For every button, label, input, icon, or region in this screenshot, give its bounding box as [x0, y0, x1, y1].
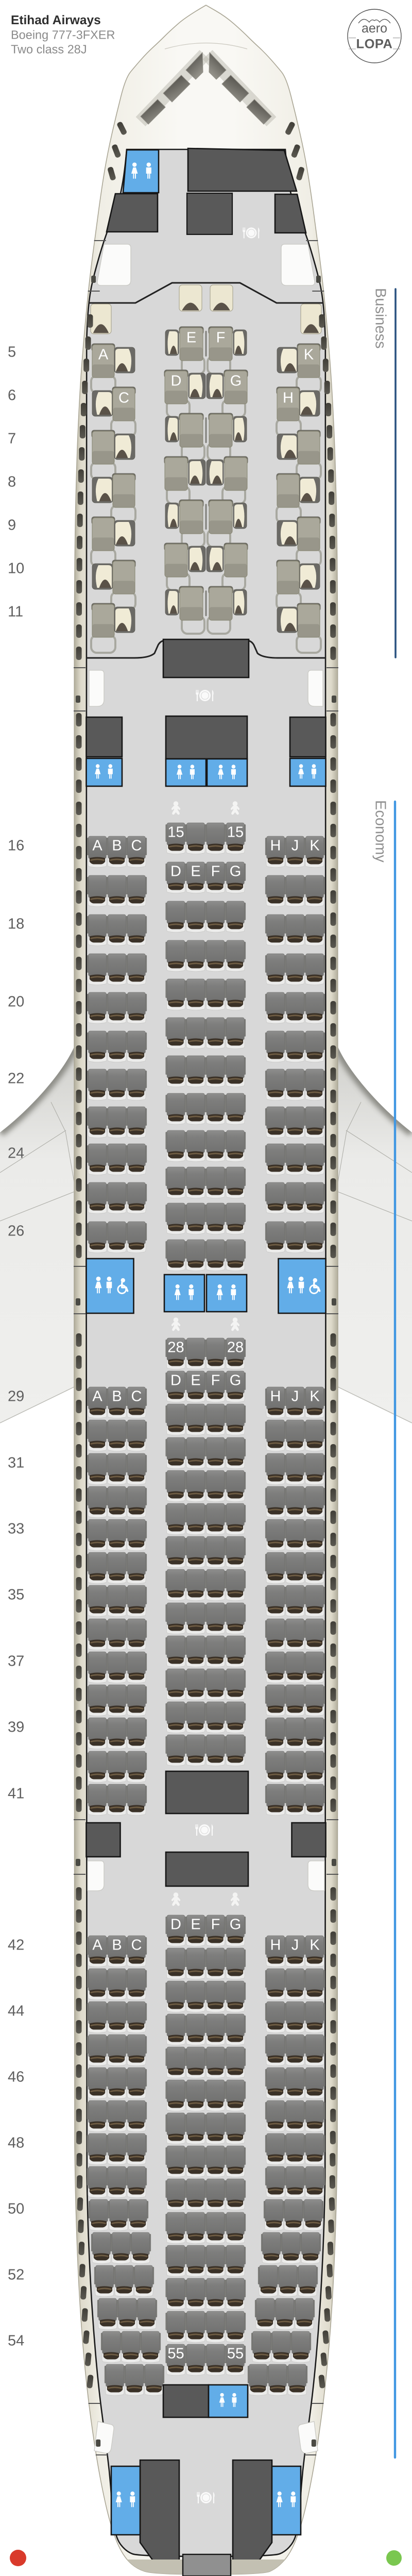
svg-text:D: D: [170, 1916, 181, 1933]
svg-text:K: K: [310, 837, 320, 854]
svg-text:LOPA: LOPA: [356, 37, 393, 52]
svg-text:G: G: [230, 372, 242, 389]
svg-text:C: C: [131, 1388, 142, 1404]
svg-text:41: 41: [8, 1785, 24, 1802]
svg-text:K: K: [304, 346, 314, 363]
svg-text:39: 39: [8, 1719, 24, 1735]
svg-text:Etihad Airways: Etihad Airways: [11, 13, 101, 27]
svg-text:37: 37: [8, 1653, 24, 1669]
svg-text:44: 44: [8, 2003, 24, 2019]
svg-text:A: A: [92, 1937, 102, 1953]
svg-text:B: B: [112, 1388, 122, 1404]
svg-text:G: G: [230, 1916, 242, 1933]
svg-text:33: 33: [8, 1520, 24, 1537]
svg-text:C: C: [131, 837, 142, 854]
svg-text:K: K: [310, 1937, 320, 1953]
svg-text:D: D: [171, 372, 182, 389]
svg-text:42: 42: [8, 1937, 24, 1953]
svg-text:55: 55: [227, 2345, 244, 2362]
svg-text:26: 26: [8, 1223, 24, 1239]
svg-text:11: 11: [8, 603, 23, 620]
svg-text:8: 8: [8, 473, 16, 490]
svg-text:D: D: [170, 863, 181, 879]
svg-text:5: 5: [8, 344, 16, 360]
svg-text:A: A: [92, 1388, 102, 1404]
svg-text:A: A: [92, 837, 102, 854]
svg-text:K: K: [310, 1388, 320, 1404]
svg-text:16: 16: [8, 837, 24, 854]
svg-text:52: 52: [8, 2266, 24, 2283]
svg-text:A: A: [98, 346, 109, 363]
svg-text:G: G: [230, 1372, 242, 1388]
svg-text:J: J: [291, 837, 299, 854]
svg-text:F: F: [216, 329, 226, 346]
svg-text:28: 28: [227, 1339, 244, 1355]
svg-text:10: 10: [8, 560, 24, 577]
svg-text:20: 20: [8, 993, 24, 1010]
svg-text:aero: aero: [362, 21, 387, 36]
svg-text:H: H: [270, 1388, 281, 1404]
svg-text:H: H: [270, 1937, 281, 1953]
svg-text:B: B: [112, 1937, 122, 1953]
svg-text:H: H: [283, 389, 294, 406]
svg-text:E: E: [191, 1372, 200, 1388]
svg-text:50: 50: [8, 2200, 24, 2217]
svg-text:31: 31: [8, 1454, 24, 1471]
svg-text:24: 24: [8, 1145, 24, 1161]
svg-text:C: C: [131, 1937, 142, 1953]
svg-text:C: C: [118, 389, 129, 406]
svg-text:D: D: [170, 1372, 181, 1388]
svg-text:E: E: [191, 1916, 200, 1933]
svg-text:F: F: [211, 863, 220, 879]
svg-text:Boeing 777-3FXER: Boeing 777-3FXER: [11, 28, 115, 42]
svg-text:15: 15: [167, 824, 184, 840]
svg-text:29: 29: [8, 1388, 24, 1404]
svg-text:28: 28: [167, 1339, 184, 1355]
svg-text:22: 22: [8, 1070, 24, 1087]
svg-text:48: 48: [8, 2134, 24, 2151]
svg-text:H: H: [270, 837, 281, 854]
svg-text:G: G: [230, 863, 242, 879]
svg-text:Economy: Economy: [372, 800, 389, 862]
svg-text:E: E: [191, 863, 200, 879]
svg-text:55: 55: [167, 2345, 184, 2362]
svg-text:B: B: [112, 837, 122, 854]
svg-text:35: 35: [8, 1586, 24, 1603]
svg-text:F: F: [211, 1372, 220, 1388]
svg-text:F: F: [211, 1916, 220, 1933]
svg-text:6: 6: [8, 387, 16, 403]
svg-text:7: 7: [8, 430, 16, 447]
svg-text:Two class 28J: Two class 28J: [11, 43, 87, 56]
svg-text:E: E: [186, 329, 196, 346]
svg-text:54: 54: [8, 2332, 24, 2349]
svg-text:9: 9: [8, 517, 16, 533]
svg-text:J: J: [291, 1937, 299, 1953]
svg-text:18: 18: [8, 916, 24, 932]
svg-text:15: 15: [227, 824, 244, 840]
svg-text:J: J: [291, 1388, 299, 1404]
svg-text:Business: Business: [372, 288, 389, 349]
svg-text:46: 46: [8, 2069, 24, 2085]
